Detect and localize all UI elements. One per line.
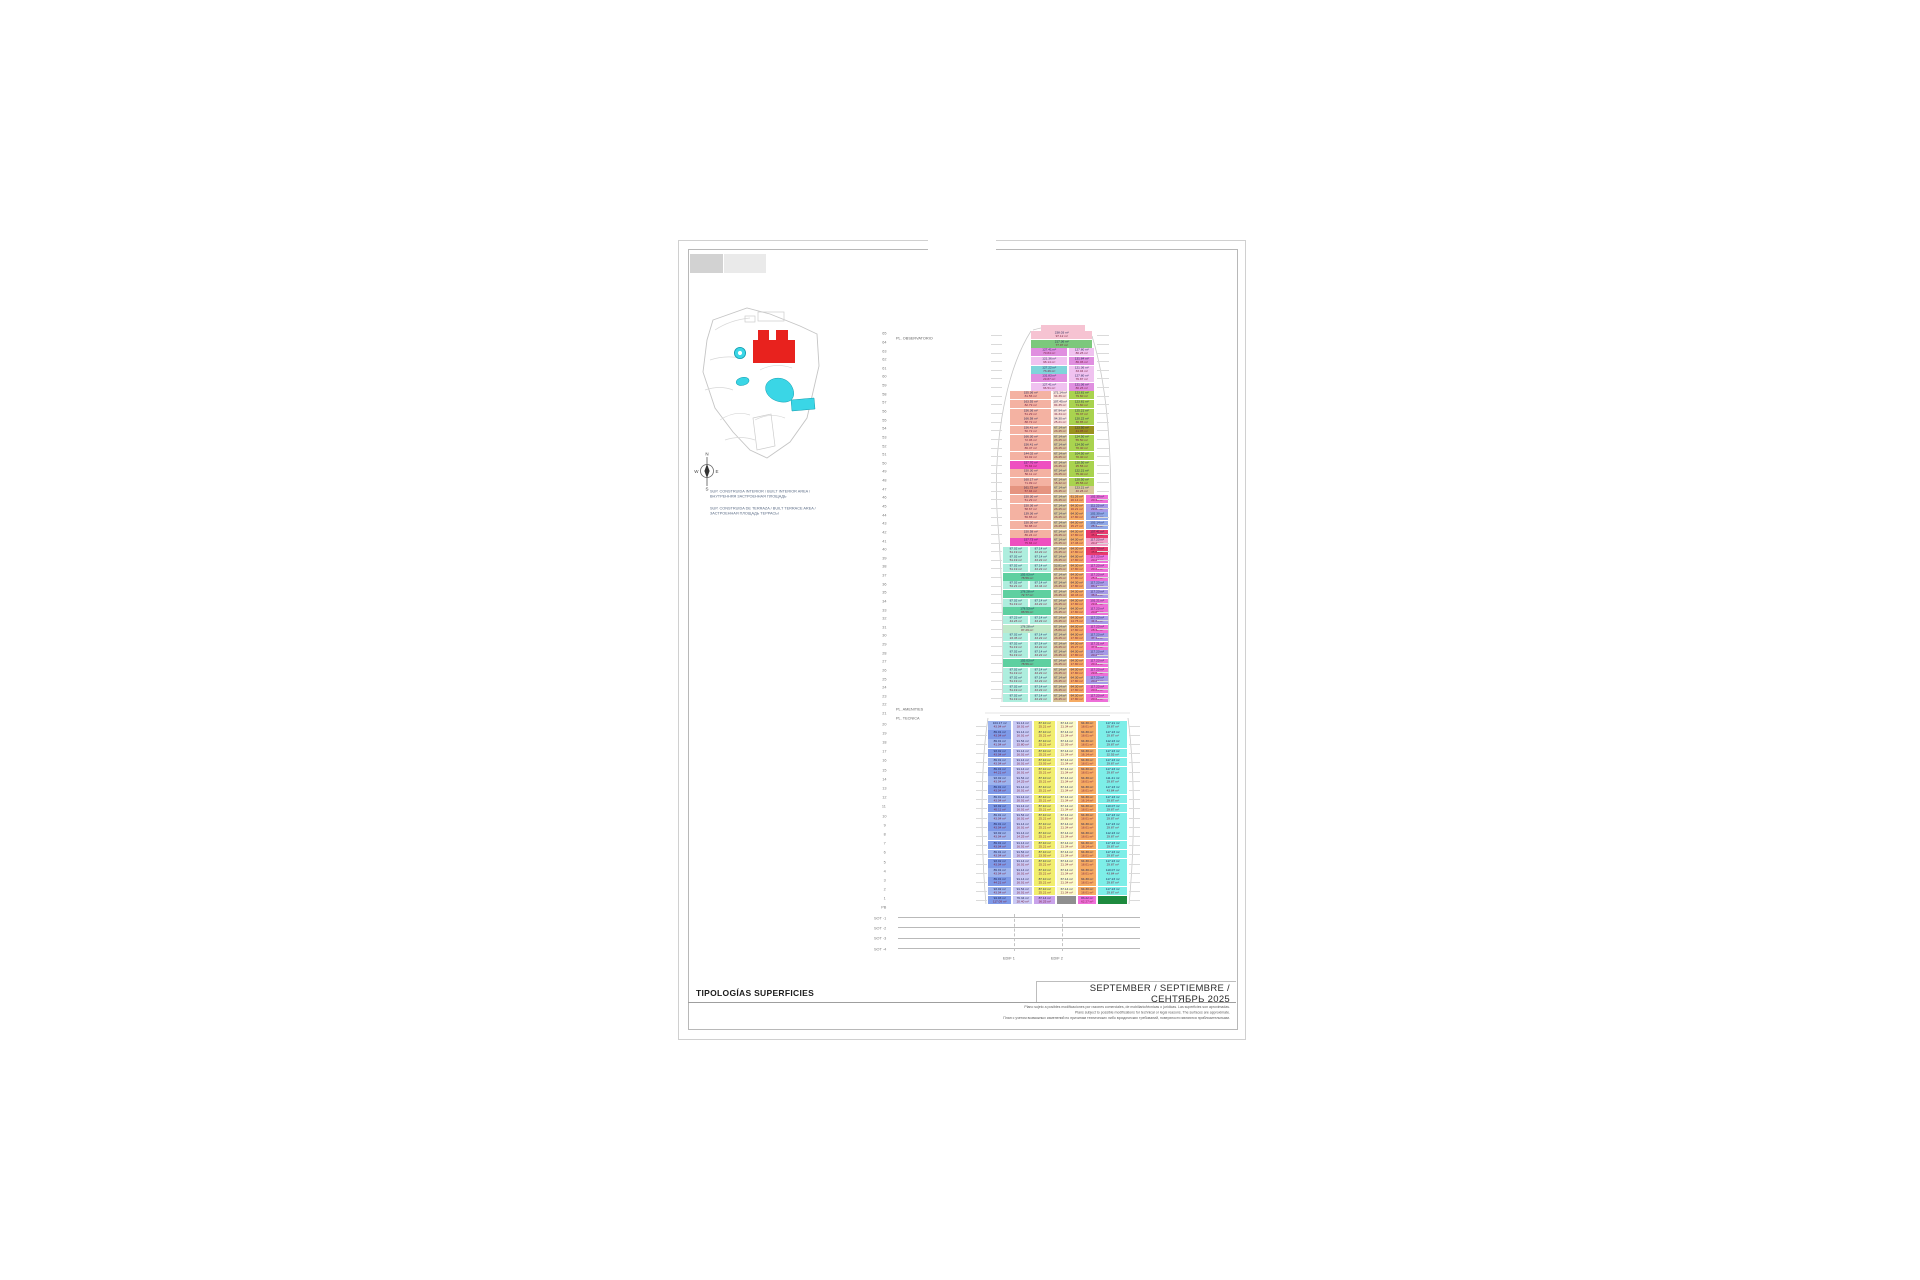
floor-tick — [976, 864, 987, 865]
unit-cell: 89.01 m²43.04 m² — [988, 813, 1011, 822]
unit-cell-areas: 67.14 m²21.34 m² — [1057, 767, 1076, 776]
floor-number: 42 — [858, 530, 886, 538]
unit-cell: 107.45 m²84.35 m² — [1053, 400, 1067, 408]
floor-tick — [976, 781, 987, 782]
unit-cell: 117.23 m²29.87 m² — [1098, 850, 1127, 859]
floor-number-text: 41 — [882, 539, 886, 544]
unit-cell-areas: 67.14 m²23.45 m² — [1053, 599, 1067, 607]
unit-cell: 87.02 m²51.19 m² — [1003, 676, 1028, 684]
unit-cell-areas: 91.14 m²16.01 m² — [1013, 749, 1032, 758]
floor-tick — [1129, 891, 1140, 892]
unit-cell: 64.30 m²18.01 m² — [1078, 859, 1096, 868]
unit-cell: 150.30 m²50.88 m² — [1010, 521, 1051, 529]
unit-cell-areas: 104.50 m²70.40 m² — [1069, 452, 1094, 460]
floor-tick — [976, 882, 987, 883]
unit-cell: 87.10 m²25.21 m² — [1034, 721, 1055, 730]
unit-cell: 91.14 m²16.01 m² — [1013, 841, 1032, 850]
floor-tick — [1097, 361, 1109, 362]
unit-cell-areas: 238.03 m²97.12 m² — [1031, 331, 1092, 339]
unit-cell: 64.30 m²18.01 m² — [1078, 758, 1096, 767]
floor-number: 29 — [858, 642, 886, 650]
floor-number-text: 52 — [882, 444, 886, 449]
unit-cell-areas: 87.10 m²25.21 m² — [1034, 887, 1055, 896]
unit-cell: 91.54 m²15.80 m² — [1013, 739, 1032, 748]
unit-cell-areas: 93.02 m²43.04 m² — [988, 831, 1011, 840]
unit-cell: 117.23 m²32.55 m² — [1098, 749, 1127, 758]
floor-number-text: 47 — [882, 487, 886, 492]
unit-cell-areas: 87.10 m²25.21 m² — [1034, 730, 1055, 739]
unit-cell: 64.30 m²16.14 m² — [1078, 749, 1096, 758]
floor-tick — [991, 586, 1002, 587]
unit-cell-areas: 67.14 m²23.45 m² — [1053, 668, 1067, 676]
unit-cell-areas: 89.01 m²43.04 m² — [988, 785, 1011, 794]
unit-cell-areas: 87.02 m²51.19 m² — [1003, 650, 1028, 658]
unit-cell-areas: 91.14 m²16.01 m² — [1013, 877, 1032, 886]
floor-number: 28 — [858, 651, 886, 659]
unit-cell: 67.14 m²23.45 m² — [1053, 616, 1067, 624]
floor-tick — [991, 517, 1002, 518]
floor-tick — [1097, 655, 1109, 656]
unit-cell: 64.30 m²17.80 m² — [1069, 633, 1084, 641]
floor-number-text: 63 — [882, 349, 886, 354]
unit-cell-areas: 124.50 m²70.40 m² — [1069, 443, 1094, 451]
floor-tick — [991, 335, 1002, 336]
unit-cell: 178.53 m²88.56 m² — [1003, 607, 1051, 615]
floor-tick — [976, 854, 987, 855]
unit-cell-areas: 125.21 m²76.37 m² — [1069, 409, 1094, 417]
unit-cell: 89.01 m²43.04 m² — [988, 868, 1011, 877]
floor-number: 35 — [858, 590, 886, 598]
unit-cell-areas: 117.23 m²29.87 m² — [1098, 795, 1127, 804]
unit-cell-areas: 87.02 m²51.19 m² — [1003, 685, 1028, 693]
unit-cell-areas: 67.14 m²21.34 m² — [1057, 785, 1076, 794]
unit-cell: 67.14 m²23.45 m² — [1053, 668, 1067, 676]
unit-cell: 67.14 m²23.45 m² — [1053, 659, 1067, 667]
unit-cell: 67.14 m²21.34 m² — [1057, 721, 1076, 730]
floor-tick — [976, 808, 987, 809]
unit-cell-areas: 87.14 m²43.22 m² — [1030, 633, 1051, 641]
unit-cell-areas: 155.03 m²78.56 m² — [1003, 659, 1051, 667]
floor-tick — [991, 637, 1002, 638]
unit-cell-areas: 93.02 m²45.11 m² — [988, 804, 1011, 813]
top-border-white-patch — [928, 236, 996, 258]
floor-number-text: 8 — [884, 832, 886, 837]
floor-number: 59 — [858, 383, 886, 391]
basement-line — [898, 938, 1140, 939]
floor-tick — [1097, 603, 1109, 604]
unit-cell: 89.01 m²43.04 m² — [988, 785, 1011, 794]
floor-number: 40 — [858, 547, 886, 555]
unit-cell-areas: 112.23 m²29.87 m² — [1098, 831, 1127, 840]
floor-tick — [1097, 577, 1109, 578]
unit-cell-areas: 117.23 m²29.87 m² — [1098, 841, 1127, 850]
unit-cell-areas: 122.21 m²75.40 m² — [1069, 469, 1094, 477]
unit-cell: 104.17 m²43.04 m² — [988, 721, 1011, 730]
unit-cell-areas: 64.30 m²18.01 m² — [1078, 822, 1096, 831]
unit-cell-areas: 64.30 m²15.27 m² — [1069, 521, 1084, 529]
unit-cell: 67.14 m²21.34 m² — [1057, 776, 1076, 785]
floor-number: 61 — [858, 366, 886, 374]
unit-cell-areas: 67.14 m²21.34 m² — [1057, 749, 1076, 758]
unit-cell-areas: 67.14 m²21.34 m² — [1057, 822, 1076, 831]
floor-tick — [991, 534, 1002, 535]
floor-tick — [1129, 827, 1140, 828]
unit-cell-areas: 123.81 m²79.60 m² — [1069, 391, 1094, 399]
unit-cell-areas: 67.14 m²23.45 m² — [1053, 581, 1067, 589]
unit-cell: 67.14 m²21.34 m² — [1057, 749, 1076, 758]
unit-cell: 217.36 m²77.07 m² — [1031, 340, 1092, 348]
floor-number-text: 27 — [882, 659, 886, 664]
floor-number: 18 — [858, 740, 886, 748]
floor-tick — [1097, 335, 1109, 336]
floor-tick — [991, 344, 1002, 345]
unit-cell-areas: 87.10 m²25.21 m² — [1034, 804, 1055, 813]
unit-cell-areas: 87.02 m²51.19 m² — [1003, 599, 1028, 607]
unit-cell: 150.30 m²51.29 m² — [1010, 495, 1051, 503]
floor-number: 56 — [858, 409, 886, 417]
floor-number-text: 60 — [882, 374, 886, 379]
unit-cell: 87.14 m²43.22 m² — [1030, 616, 1051, 624]
floor-number: SOT -2 — [858, 926, 886, 934]
floor-tick — [991, 620, 1002, 621]
unit-cell-areas: 64.30 m²15.27 m² — [1069, 642, 1084, 650]
unit-cell: 64.30 m²18.01 m² — [1078, 785, 1096, 794]
unit-cell: 121.36 m²33.04 m² — [1069, 366, 1094, 374]
floor-number-text: 56 — [882, 409, 886, 414]
unit-cell: 93.02 m²43.04 m² — [988, 887, 1011, 896]
floor-tick — [976, 873, 987, 874]
unit-cell-areas: 121.36 m²98.14 m² — [1031, 357, 1067, 365]
unit-cell-areas: 94.30 m²25.21 m² — [1053, 417, 1067, 425]
legend-line: ЗАСТРОЕННАЯ ПЛОЩАДЬ ТЕРРАСЫ — [710, 511, 816, 516]
unit-cell-areas: 61.26 m²20.14 m² — [1069, 495, 1084, 503]
unit-cell: 87.14 m²43.22 m² — [1030, 650, 1051, 658]
floor-number: 37 — [858, 573, 886, 581]
unit-cell-areas: 67.14 m²23.45 m² — [1053, 530, 1067, 538]
floor-number-text: 30 — [882, 633, 886, 638]
unit-cell: 91.14 m²16.01 m² — [1013, 877, 1032, 886]
unit-cell-areas: 67.14 m²23.45 m² — [1053, 616, 1067, 624]
floor-tick — [976, 753, 987, 754]
floor-tick — [1097, 456, 1109, 457]
unit-cell-areas: 117.23 m²43.84 m² — [1098, 785, 1127, 794]
floor-tick — [1129, 762, 1140, 763]
floor-tick — [991, 361, 1002, 362]
unit-cell: 91.14 m²16.01 m² — [1013, 785, 1032, 794]
floor-number: 23 — [858, 694, 886, 702]
floor-number-text: 22 — [882, 702, 886, 707]
floor-number: 5 — [858, 860, 886, 868]
floor-tick — [976, 735, 987, 736]
unit-cell-areas: 64.30 m²17.80 m² — [1069, 573, 1084, 581]
floor-tick — [991, 482, 1002, 483]
unit-cell-areas: 87.14 m²43.22 m² — [1030, 668, 1051, 676]
floor-tick — [991, 603, 1002, 604]
floor-number: 41 — [858, 539, 886, 547]
disclaimer-line-ru: План с учетом возможных изменений по при… — [990, 1016, 1230, 1021]
floor-tick — [991, 439, 1002, 440]
unit-cell: 91.14 m²16.01 m² — [1013, 758, 1032, 767]
unit-cell-areas: 67.14 m²22.09 m² — [1057, 739, 1076, 748]
unit-cell: 87.14 m²43.22 m² — [1030, 547, 1051, 555]
floor-number: 1 — [858, 896, 886, 904]
unit-cell-areas: 91.14 m²16.01 m² — [1013, 841, 1032, 850]
unit-cell-areas: 67.14 m²23.45 m² — [1053, 676, 1067, 684]
unit-cell-areas: 67.14 m²23.45 m² — [1053, 650, 1067, 658]
floor-number: 17 — [858, 749, 886, 757]
unit-cell: 87.10 m²23.03 m² — [1034, 758, 1055, 767]
unit-cell-areas: 127.80 m²80.26 m² — [1069, 348, 1094, 356]
unit-cell-areas: 91.54 m²16.01 m² — [1013, 887, 1032, 896]
unit-cell-areas: 127.80 m²76.87 m² — [1069, 374, 1094, 382]
unit-cell-areas: 91.14 m²14.25 m² — [1013, 831, 1032, 840]
unit-cell-areas: 67.14 m²23.45 m² — [1053, 590, 1067, 598]
unit-cell-areas: 117.21 m²29.87 m² — [1098, 721, 1127, 730]
unit-cell-areas: 64.30 m²17.80 m² — [1069, 659, 1084, 667]
unit-cell: 87.94 m²34.34 m² — [1053, 409, 1067, 417]
unit-cell: 67.14 m²21.34 m² — [1057, 795, 1076, 804]
unit-cell-areas: 67.14 m²23.45 m² — [1053, 504, 1067, 512]
unit-cell: 64.30 m²18.01 m² — [1078, 877, 1096, 886]
floor-tick — [1129, 790, 1140, 791]
unit-cell: 67.14 m²23.45 m² — [1053, 426, 1067, 434]
edifice-label: EDIF 1 — [1003, 951, 1029, 959]
floor-number-text: 44 — [882, 513, 886, 518]
floor-tick — [1129, 900, 1140, 901]
floor-number-text: 36 — [882, 582, 886, 587]
floor-number-text: 25 — [882, 677, 886, 682]
floor-number: 53 — [858, 435, 886, 443]
unit-cell-areas: 87.02 m²54.21 m² — [1003, 581, 1028, 589]
unit-cell: 121.36 m²98.14 m² — [1031, 357, 1067, 365]
unit-cell: 87.02 m²51.19 m² — [1003, 694, 1028, 702]
unit-cell-areas: 64.30 m²18.01 m² — [1078, 850, 1096, 859]
unit-cell: 67.14 m²23.45 m² — [1053, 555, 1067, 563]
unit-cell-areas: 87.14 m²43.22 m² — [1030, 676, 1051, 684]
unit-cell: 67.14 m²23.45 m² — [1053, 650, 1067, 658]
edifice-label-text: EDIF 1 — [1003, 956, 1015, 961]
floor-tick — [1097, 672, 1109, 673]
floor-tick — [1097, 508, 1109, 509]
unit-cell: 87.02 m²51.19 m² — [1003, 668, 1028, 676]
unit-cell-areas: 87.10 m²25.21 m² — [1034, 868, 1055, 877]
unit-cell-areas: 64.30 m²17.80 m² — [1069, 607, 1084, 615]
floor-number: 19 — [858, 731, 886, 739]
floor-number: 62 — [858, 357, 886, 365]
floor-number-text: 51 — [882, 452, 886, 457]
unit-cell: 87.02 m²51.19 m² — [1003, 599, 1028, 607]
unit-cell-areas: 87.10 m²25.21 m² — [1034, 739, 1055, 748]
unit-cell-areas: 117.23 m²29.87 m² — [1098, 822, 1127, 831]
unit-cell: 87.23 m²44.23 m² — [1003, 616, 1028, 624]
unit-cell-areas: 87.14 m²43.22 m² — [1030, 650, 1051, 658]
unit-cell: 67.14 m²25.86 m² — [1053, 625, 1067, 633]
floor-tick — [1097, 413, 1109, 414]
floor-tick — [1097, 517, 1109, 518]
unit-cell: 87.14 m²43.22 m² — [1030, 668, 1051, 676]
unit-cell-areas: 87.14 m²43.22 m² — [1030, 616, 1051, 624]
floor-tick — [991, 663, 1002, 664]
unit-cell-areas: 127.22 m²73.46 m² — [1031, 366, 1067, 374]
unit-cell: 67.14 m²23.45 m² — [1053, 486, 1067, 494]
unit-cell-areas: 64.30 m²17.80 m² — [1069, 676, 1084, 684]
unit-cell: 156.41 m²50.72 m² — [1010, 426, 1051, 434]
floor-number-text: 28 — [882, 651, 886, 656]
unit-cell: 67.14 m²22.09 m² — [1057, 739, 1076, 748]
floor-tick — [976, 818, 987, 819]
unit-cell: 67.14 m²21.34 m² — [1057, 785, 1076, 794]
edifice-label-text: EDIF 2 — [1051, 956, 1063, 961]
floor-number: 30 — [858, 633, 886, 641]
floor-tick — [991, 370, 1002, 371]
unit-cell-areas: 120.22 m²30.85 m² — [1069, 417, 1094, 425]
unit-cell-areas: 150.30 m²50.11 m² — [1010, 469, 1051, 477]
floor-tick — [1129, 845, 1140, 846]
unit-cell-areas: 87.14 m²36.25 m² — [1034, 896, 1055, 905]
unit-cell-areas: 104.17 m²43.04 m² — [988, 721, 1011, 730]
unit-cell-areas: 93.02 m²43.04 m² — [988, 749, 1011, 758]
unit-cell-areas: 121.36 m²80.26 m² — [1069, 383, 1094, 391]
floor-tick — [1097, 646, 1109, 647]
unit-cell-areas: 87.14 m²43.22 m² — [1030, 564, 1051, 572]
unit-cell-areas: 166.58 m²88.72 m² — [1010, 417, 1051, 425]
unit-cell-areas: 110.07 m²43.84 m² — [1098, 868, 1127, 877]
unit-cell-areas: 87.10 m²25.21 m² — [1034, 859, 1055, 868]
unit-cell: 67.14 m²23.45 m² — [1053, 547, 1067, 555]
unit-cell-areas: 91.54 m²15.80 m² — [1013, 739, 1032, 748]
floor-number-text: 10 — [882, 814, 886, 819]
floor-number: 43 — [858, 521, 886, 529]
floor-tick — [1129, 726, 1140, 727]
unit-cell: 93.02 m²43.04 m² — [988, 776, 1011, 785]
floor-tick — [1097, 637, 1109, 638]
floor-tick — [1129, 753, 1140, 754]
unit-cell: 64.30 m²17.80 m² — [1069, 555, 1084, 563]
unit-cell: 89.01 m²44.21 m² — [988, 767, 1011, 776]
unit-cell-areas: 91.14 m²16.01 m² — [1013, 868, 1032, 877]
unit-cell: 87.14 m²43.22 m² — [1030, 564, 1051, 572]
floor-number: 24 — [858, 685, 886, 693]
floor-tick — [1097, 439, 1109, 440]
unit-cell-areas: 91.14 m²16.01 m² — [1013, 785, 1032, 794]
unit-cell: 123.81 m²71.60 m² — [1069, 400, 1094, 408]
floor-number-text: 40 — [882, 547, 886, 552]
unit-cell-areas: 64.30 m²17.80 m² — [1069, 625, 1084, 633]
unit-cell-areas: 67.14 m²21.34 m² — [1057, 850, 1076, 859]
floor-tick — [991, 577, 1002, 578]
unit-cell: 67.14 m²21.34 m² — [1057, 841, 1076, 850]
unit-cell-areas: 120.50 m²25.56 m² — [1069, 461, 1094, 469]
unit-cell-areas: 131.84 m²86.06 m² — [1069, 357, 1094, 365]
unit-cell-areas: 87.02 m²23.45 m² — [1003, 633, 1028, 641]
unit-cell: 64.30 m²16.14 m² — [1078, 795, 1096, 804]
floor-number-text: 42 — [882, 530, 886, 535]
unit-cell: 87.10 m²25.21 m² — [1034, 795, 1055, 804]
floor-number: SOT -4 — [858, 947, 886, 955]
floor-tick — [991, 655, 1002, 656]
floor-number: PB — [858, 905, 886, 913]
unit-cell-areas: 67.14 m²23.45 m² — [1053, 547, 1067, 555]
floor-number-text: 11 — [882, 804, 886, 809]
unit-cell-areas: 89.01 m²43.04 m² — [988, 868, 1011, 877]
unit-cell: 117.21 m²29.87 m² — [1098, 721, 1127, 730]
unit-cell-areas: 67.14 m²23.45 m² — [1053, 486, 1067, 494]
floor-number-text: 6 — [884, 850, 886, 855]
unit-cell: 64.30 m²18.01 m² — [1078, 813, 1096, 822]
unit-cell: 87.02 m²54.21 m² — [1003, 581, 1028, 589]
floor-tick — [976, 744, 987, 745]
floor-number: 12 — [858, 795, 886, 803]
unit-cell-areas: 161.72 m²57.94 m² — [1010, 486, 1051, 494]
unit-cell: 67.14 m²21.34 m² — [1057, 887, 1076, 896]
unit-cell: 64.30 m²17.80 m² — [1069, 530, 1084, 538]
unit-cell-areas: 67.14 m²21.34 m² — [1057, 795, 1076, 804]
unit-cell-areas: 67.14 m²23.45 m² — [1053, 443, 1067, 451]
floor-number: 47 — [858, 487, 886, 495]
legend-line: ВНУТРЕННЯЯ ЗАСТРОЕННАЯ ПЛОЩАДЬ — [710, 494, 810, 499]
unit-cell: 87.10 m²25.21 m² — [1034, 813, 1055, 822]
floor-number-text: PB — [881, 905, 886, 910]
unit-cell: 87.14 m²43.22 m² — [1030, 642, 1051, 650]
unit-cell-areas: 64.30 m²18.01 m² — [1078, 758, 1096, 767]
unit-cell: 64.30 m²17.80 m² — [1069, 607, 1084, 615]
unit-cell: 67.14 m²23.45 m² — [1053, 590, 1067, 598]
floor-number: 39 — [858, 556, 886, 564]
unit-cell: 91.14 m²16.01 m² — [1013, 804, 1032, 813]
floor-label-text: PL. OBSERVATORIO — [896, 336, 933, 341]
unit-cell-areas: 155.03 m²78.56 m² — [1003, 573, 1051, 581]
unit-cell-areas: 117.23 m²32.55 m² — [1098, 749, 1127, 758]
unit-cell: 91.14 m²16.01 m² — [1013, 730, 1032, 739]
floor-number: 50 — [858, 461, 886, 469]
unit-cell: 127.80 m²80.26 m² — [1069, 348, 1094, 356]
unit-cell-areas: 112.23 m²29.87 m² — [1098, 739, 1127, 748]
floor-tick — [1097, 491, 1109, 492]
unit-cell-areas: 64.30 m²18.01 m² — [1078, 868, 1096, 877]
unit-cell: 94.03 m²117.09 m² — [988, 896, 1011, 905]
floor-tick — [1000, 715, 1110, 716]
unit-cell-areas: 93.02 m²43.04 m² — [988, 859, 1011, 868]
floor-tick — [976, 790, 987, 791]
unit-cell: 150.36 m²58.67 m² — [1010, 504, 1051, 512]
unit-cell: 87.14 m²43.44 m² — [1030, 581, 1051, 589]
unit-cell-areas: 67.14 m²23.45 m² — [1053, 685, 1067, 693]
floor-tick — [976, 845, 987, 846]
floor-number-text: 29 — [882, 642, 886, 647]
unit-cell: 64.30 m²18.01 m² — [1078, 721, 1096, 730]
floor-tick — [991, 646, 1002, 647]
unit-cell-areas: 64.30 m²18.01 m² — [1078, 831, 1096, 840]
unit-cell: 93.02 m²43.04 m² — [988, 859, 1011, 868]
floor-number: 25 — [858, 677, 886, 685]
floor-number-text: 21 — [882, 711, 886, 716]
unit-cell: 117.23 m²29.87 m² — [1098, 887, 1127, 896]
unit-cell-areas: 87.14 m²43.22 m² — [1030, 599, 1051, 607]
floor-number: 51 — [858, 452, 886, 460]
unit-cell: 111.21 m²29.87 m² — [1098, 776, 1127, 785]
unit-cell: 120.50 m²25.56 m² — [1069, 478, 1094, 486]
floor-number: 3 — [858, 878, 886, 886]
floor-tick — [976, 827, 987, 828]
floor-tick — [1129, 735, 1140, 736]
unit-cell: 87.02 m²51.19 m² — [1003, 555, 1028, 563]
floor-tick — [1129, 854, 1140, 855]
unit-cell: 64.30 m²17.80 m² — [1069, 547, 1084, 555]
unit-cell: 124.50 m²70.40 m² — [1069, 443, 1094, 451]
unit-cell: 127.41 m²70.84 m² — [1031, 348, 1067, 356]
floor-tick — [991, 698, 1002, 699]
floor-tick — [1097, 534, 1109, 535]
